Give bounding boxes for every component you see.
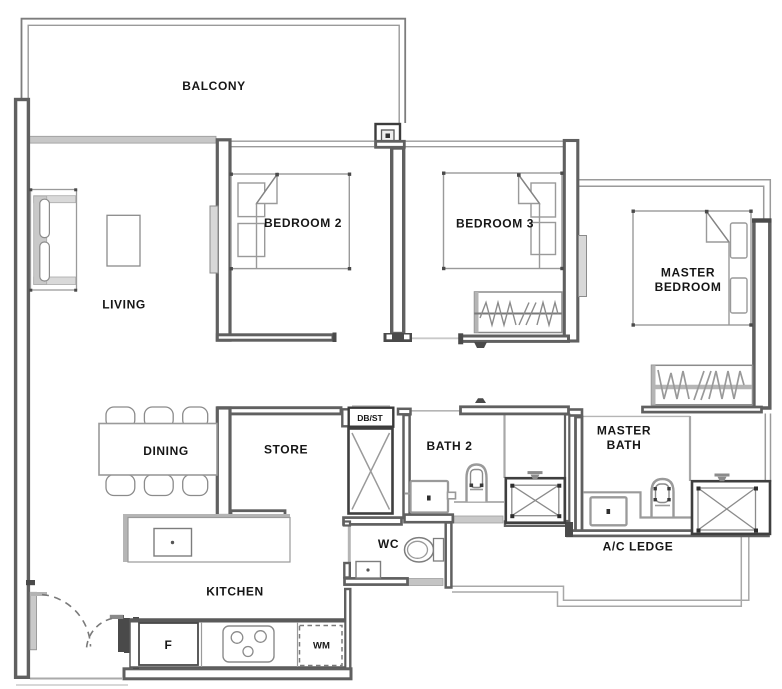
svg-text:MASTER: MASTER (597, 424, 651, 438)
svg-text:F: F (165, 638, 173, 652)
svg-text:BATH: BATH (607, 438, 642, 452)
svg-text:STORE: STORE (264, 443, 308, 457)
svg-text:KITCHEN: KITCHEN (206, 585, 264, 599)
svg-text:LIVING: LIVING (102, 298, 146, 312)
svg-text:MASTER: MASTER (661, 266, 715, 280)
svg-text:BALCONY: BALCONY (182, 79, 246, 93)
svg-text:WC: WC (378, 537, 399, 551)
svg-text:DB/ST: DB/ST (357, 413, 383, 423)
svg-text:WM: WM (313, 641, 330, 652)
svg-text:BEDROOM 3: BEDROOM 3 (456, 217, 534, 231)
svg-text:A/C LEDGE: A/C LEDGE (603, 540, 674, 554)
svg-text:BEDROOM: BEDROOM (655, 280, 722, 294)
svg-text:DINING: DINING (143, 444, 189, 458)
svg-text:BEDROOM 2: BEDROOM 2 (264, 216, 342, 230)
svg-text:BATH 2: BATH 2 (426, 439, 472, 453)
